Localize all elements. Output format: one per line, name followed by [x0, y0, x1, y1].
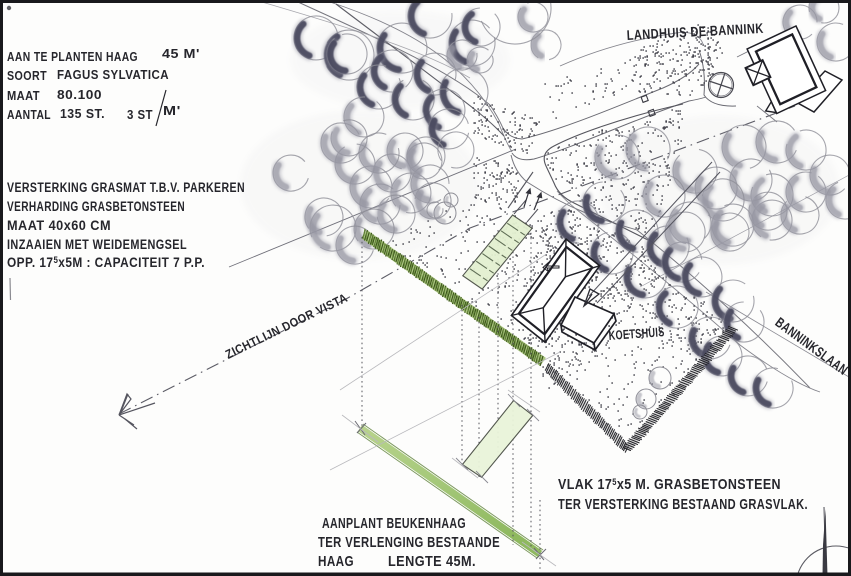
- svg-text:VLAK 175x5 M. GRASBETONSTEEN: VLAK 175x5 M. GRASBETONSTEEN: [558, 476, 781, 493]
- svg-text:LENGTE 45M.: LENGTE 45M.: [388, 553, 476, 570]
- svg-text:MAAT: MAAT: [7, 88, 40, 103]
- svg-text:MAAT 40x60 CM: MAAT 40x60 CM: [7, 218, 111, 233]
- svg-text:OPP. 175x5M : CAPACITEIT 7 P.P: OPP. 175x5M : CAPACITEIT 7 P.P.: [7, 255, 205, 270]
- svg-text:AANTAL: AANTAL: [7, 107, 51, 122]
- svg-text:TER VERLENGING BESTAANDE: TER VERLENGING BESTAANDE: [318, 534, 500, 551]
- svg-text:FAGUS SYLVATICA: FAGUS SYLVATICA: [57, 67, 169, 82]
- svg-text:HAAG: HAAG: [318, 553, 354, 570]
- svg-text:80.100: 80.100: [57, 87, 102, 102]
- svg-text:TER VERSTERKING BESTAAND GRASV: TER VERSTERKING BESTAAND GRASVLAK.: [558, 496, 808, 513]
- svg-text:VERHARDING GRASBETONSTEEN: VERHARDING GRASBETONSTEEN: [7, 199, 185, 214]
- svg-text:135 ST.: 135 ST.: [60, 106, 105, 121]
- svg-text:AAN TE PLANTEN HAAG: AAN TE PLANTEN HAAG: [7, 49, 138, 64]
- svg-text:M': M': [163, 103, 181, 118]
- svg-text:AANPLANT BEUKENHAAG: AANPLANT BEUKENHAAG: [322, 515, 466, 532]
- svg-text:INZAAIEN MET WEIDEMENGSEL: INZAAIEN MET WEIDEMENGSEL: [7, 237, 187, 252]
- svg-text:VERSTERKING GRASMAT T.B.V. PAR: VERSTERKING GRASMAT T.B.V. PARKEREN: [7, 180, 245, 195]
- svg-text:SOORT: SOORT: [7, 68, 47, 83]
- svg-text:45 M': 45 M': [162, 46, 200, 61]
- svg-text:3 ST: 3 ST: [127, 107, 153, 122]
